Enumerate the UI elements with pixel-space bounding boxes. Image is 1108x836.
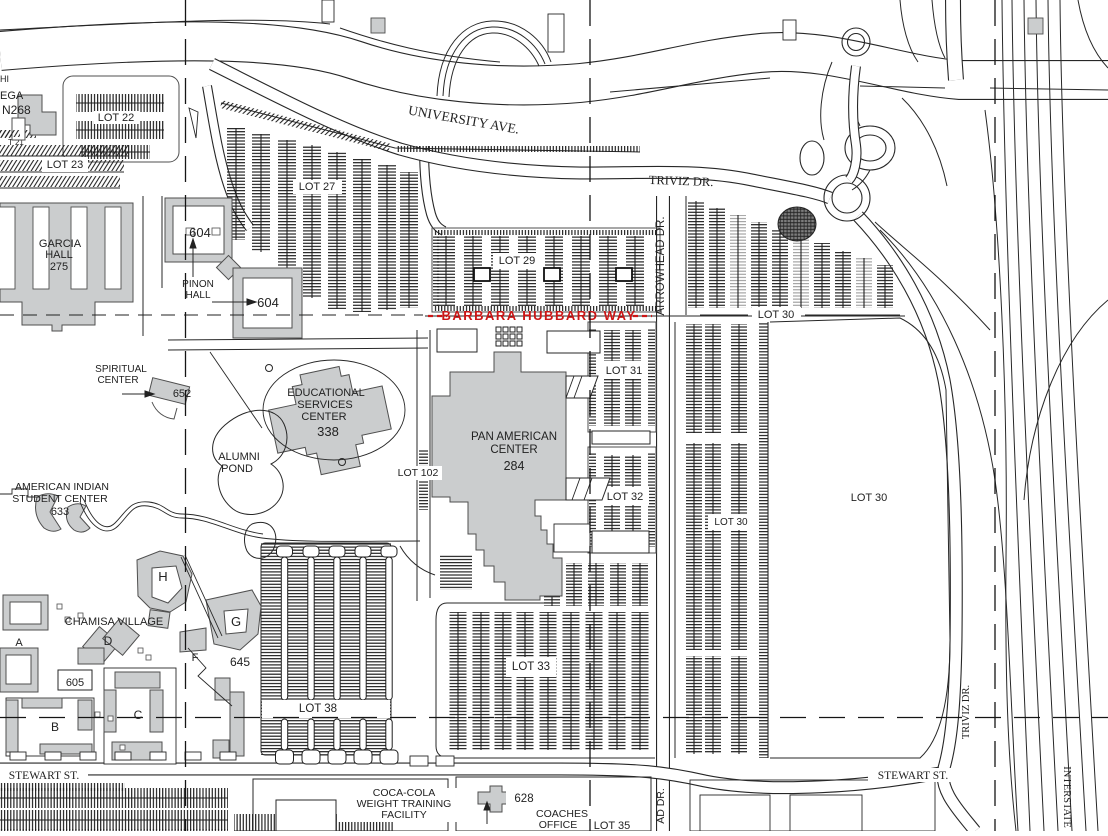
- svg-text:UNIVERSITY AVE.: UNIVERSITY AVE.: [407, 102, 520, 136]
- svg-text:LOT 35: LOT 35: [594, 820, 631, 831]
- svg-text:BARBARA HUBBARD WAY: BARBARA HUBBARD WAY: [441, 308, 636, 323]
- svg-text:604: 604: [257, 295, 279, 310]
- svg-text:D: D: [104, 634, 113, 648]
- svg-text:FACILITY: FACILITY: [381, 809, 427, 821]
- svg-text:F: F: [192, 652, 199, 664]
- svg-text:ARROWHEAD DR.: ARROWHEAD DR.: [655, 216, 667, 315]
- svg-text:CHAMISA VILLAGE: CHAMISA VILLAGE: [65, 616, 163, 628]
- svg-text:H: H: [158, 569, 167, 584]
- svg-text:EDUCATIONAL: EDUCATIONAL: [287, 387, 364, 399]
- svg-text:LOT 31: LOT 31: [606, 365, 643, 377]
- svg-text:652: 652: [173, 388, 191, 400]
- svg-text:LOT 30: LOT 30: [851, 492, 888, 504]
- svg-text:633: 633: [51, 506, 69, 518]
- svg-text:G: G: [231, 614, 241, 629]
- svg-text:AMERICAN INDIAN: AMERICAN INDIAN: [15, 481, 109, 493]
- svg-text:LOT 22: LOT 22: [98, 112, 135, 124]
- svg-text:STUDENT CENTER: STUDENT CENTER: [12, 493, 108, 505]
- svg-text:B: B: [51, 720, 59, 734]
- svg-text:CENTER: CENTER: [301, 411, 346, 423]
- svg-text:LOT 32: LOT 32: [607, 491, 644, 503]
- svg-text:LOT 30: LOT 30: [758, 309, 795, 321]
- svg-text:605: 605: [66, 677, 84, 689]
- svg-text:LOT 27: LOT 27: [299, 181, 336, 193]
- svg-text:PINON: PINON: [182, 279, 214, 290]
- svg-text:LOT 29: LOT 29: [499, 255, 536, 267]
- svg-text:LOT 38: LOT 38: [299, 703, 337, 715]
- svg-text:CENTER: CENTER: [97, 375, 138, 386]
- svg-text:LOT 102: LOT 102: [398, 467, 439, 479]
- svg-text:645: 645: [230, 655, 250, 669]
- svg-text:HALL: HALL: [185, 290, 210, 301]
- svg-text:LOT 23: LOT 23: [47, 159, 84, 171]
- svg-text:SERVICES: SERVICES: [297, 399, 352, 411]
- svg-text:PAN AMERICAN: PAN AMERICAN: [471, 431, 557, 443]
- svg-text:AD DR.: AD DR.: [655, 788, 667, 824]
- svg-text:STEWART ST.: STEWART ST.: [9, 770, 80, 782]
- svg-text:OFFICE: OFFICE: [539, 819, 578, 831]
- svg-text:604: 604: [189, 225, 211, 240]
- svg-text:284: 284: [504, 459, 525, 473]
- svg-text:TRIVIZ DR.: TRIVIZ DR.: [649, 173, 714, 189]
- svg-text:A: A: [15, 637, 23, 649]
- svg-text:N268: N268: [2, 103, 31, 117]
- svg-text:TRIVIZ DR.: TRIVIZ DR.: [961, 685, 972, 739]
- svg-text:INTERSTATE: INTERSTATE: [1061, 766, 1072, 828]
- svg-text:C: C: [134, 708, 143, 722]
- svg-text:LOT 33: LOT 33: [512, 661, 550, 673]
- svg-text:338: 338: [317, 424, 339, 439]
- svg-text:POND: POND: [221, 463, 253, 475]
- svg-text:HALL: HALL: [45, 249, 73, 261]
- svg-text:SPIRITUAL: SPIRITUAL: [95, 364, 147, 375]
- svg-text:LOT 30: LOT 30: [714, 517, 748, 528]
- svg-text:EGA: EGA: [0, 90, 24, 102]
- svg-text:STEWART ST.: STEWART ST.: [878, 770, 949, 782]
- svg-text:275: 275: [50, 261, 68, 273]
- svg-text:628: 628: [514, 793, 533, 805]
- svg-text:CENTER: CENTER: [490, 444, 537, 456]
- svg-text:ALUMNI: ALUMNI: [218, 451, 260, 463]
- svg-text:HI: HI: [0, 74, 9, 84]
